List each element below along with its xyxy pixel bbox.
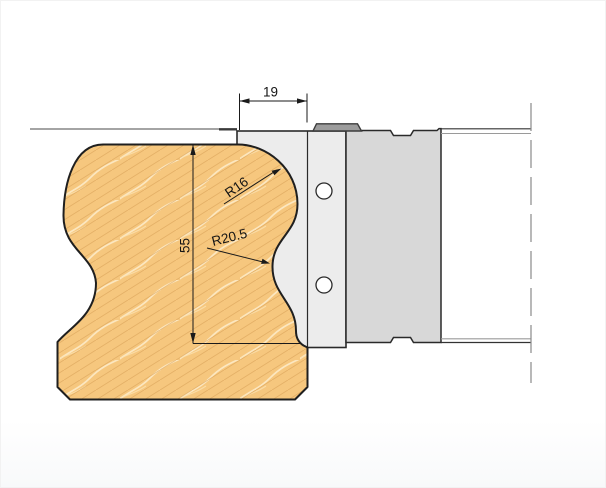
cutter-block-body: [346, 129, 441, 343]
dimension-width-19: 19: [240, 85, 308, 131]
arbor-lines: [441, 129, 531, 343]
cutter-profile-diagram: 19 55 R16 R20.5: [0, 0, 606, 488]
dim-width-label: 19: [263, 85, 278, 100]
knife-hole-bottom: [316, 277, 332, 293]
dim-height-label: 55: [178, 238, 193, 253]
arrowhead-right: [297, 98, 307, 103]
arrowhead-left: [240, 98, 250, 103]
technical-drawing-canvas: 19 55 R16 R20.5: [0, 0, 606, 488]
workpiece: [58, 145, 308, 400]
workpiece-grain: [58, 145, 308, 400]
limiter-tab: [313, 124, 362, 131]
knife-hole-top: [316, 183, 332, 199]
